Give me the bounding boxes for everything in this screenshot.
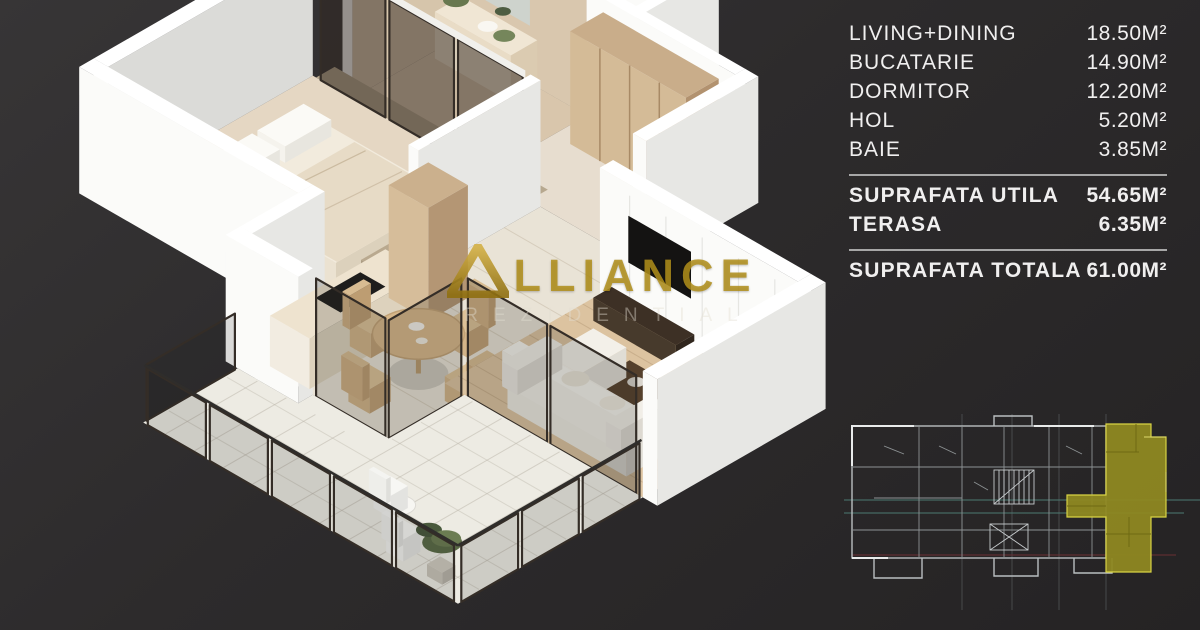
room-row: LIVING+DINING 18.50M² [849, 22, 1167, 51]
outline-accents [852, 426, 1094, 558]
room-label: DORMITOR [849, 80, 971, 104]
area-table: LIVING+DINING 18.50M² BUCATARIE 14.90M² … [849, 22, 1167, 288]
room-row: BAIE 3.85M² [849, 138, 1167, 167]
subtotal-row: SUPRAFATA UTILA 54.65M² [849, 184, 1167, 213]
total-row: SUPRAFATA TOTALA 61.00M² [849, 259, 1167, 288]
room-row: DORMITOR 12.20M² [849, 80, 1167, 109]
presentation-canvas: LLIANCE REZIDENTIAL LIVING+DINING 18.50M… [0, 0, 1200, 630]
interior-walls [852, 426, 1106, 558]
room-value: 12.20M² [1086, 80, 1167, 104]
subtotal-label: TERASA [849, 213, 943, 237]
subtotal-row: TERASA 6.35M² [849, 213, 1167, 242]
elevator [990, 524, 1028, 550]
room-value: 18.50M² [1086, 22, 1167, 46]
stairs [994, 470, 1034, 504]
site-key-plan [844, 412, 1200, 612]
subtotal-label: SUPRAFATA UTILA [849, 184, 1059, 208]
room-row: HOL 5.20M² [849, 109, 1167, 138]
room-value: 3.85M² [1099, 138, 1167, 162]
room-label: BUCATARIE [849, 51, 975, 75]
divider [849, 174, 1167, 176]
room-label: LIVING+DINING [849, 22, 1017, 46]
floor-plan-3d-render [0, 0, 830, 630]
highlighted-unit [1067, 424, 1166, 572]
room-value: 14.90M² [1086, 51, 1167, 75]
room-row: BUCATARIE 14.90M² [849, 51, 1167, 80]
total-value: 61.00M² [1086, 259, 1167, 283]
subtotal-value: 6.35M² [1099, 213, 1167, 237]
room-value: 5.20M² [1099, 109, 1167, 133]
divider [849, 249, 1167, 251]
total-label: SUPRAFATA TOTALA [849, 259, 1082, 283]
room-label: BAIE [849, 138, 901, 162]
room-label: HOL [849, 109, 895, 133]
subtotal-value: 54.65M² [1086, 184, 1167, 208]
